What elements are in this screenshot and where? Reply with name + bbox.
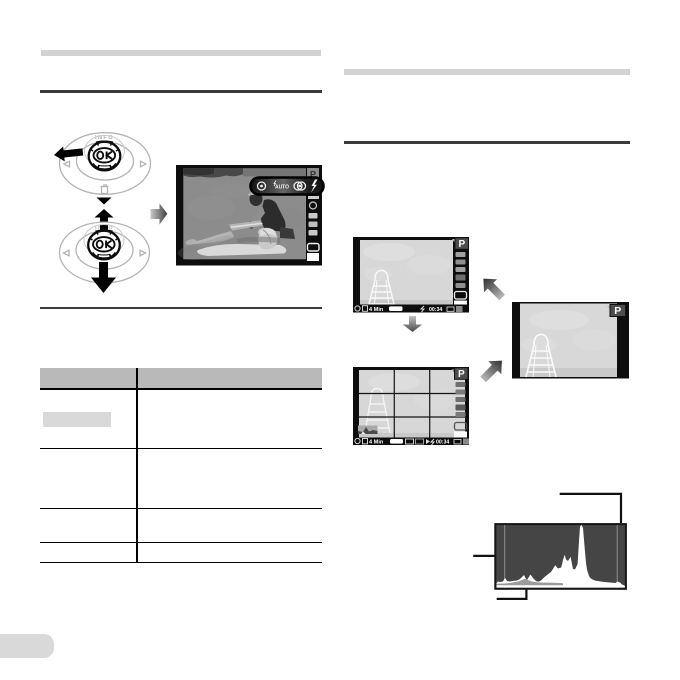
- svg-text:00:34: 00:34: [429, 307, 442, 313]
- svg-text:4 Min: 4 Min: [369, 307, 384, 313]
- svg-text:00:34: 00:34: [436, 440, 449, 446]
- svg-text:P: P: [458, 239, 465, 250]
- svg-text:P: P: [614, 305, 621, 317]
- svg-text:P: P: [458, 369, 465, 380]
- svg-text:4 Min: 4 Min: [369, 440, 384, 446]
- svg-text:AUTO: AUTO: [275, 185, 289, 191]
